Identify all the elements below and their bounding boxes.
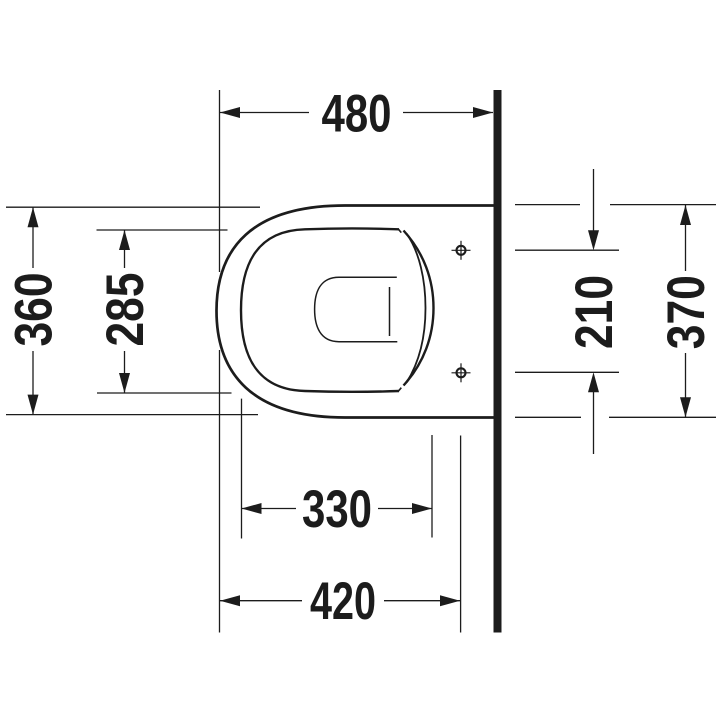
svg-text:370: 370 [657, 275, 716, 349]
svg-text:330: 330 [302, 480, 372, 539]
svg-text:420: 420 [310, 572, 376, 631]
svg-text:480: 480 [322, 85, 392, 144]
svg-text:285: 285 [96, 273, 155, 347]
svg-text:360: 360 [4, 273, 63, 347]
svg-text:210: 210 [565, 275, 624, 349]
